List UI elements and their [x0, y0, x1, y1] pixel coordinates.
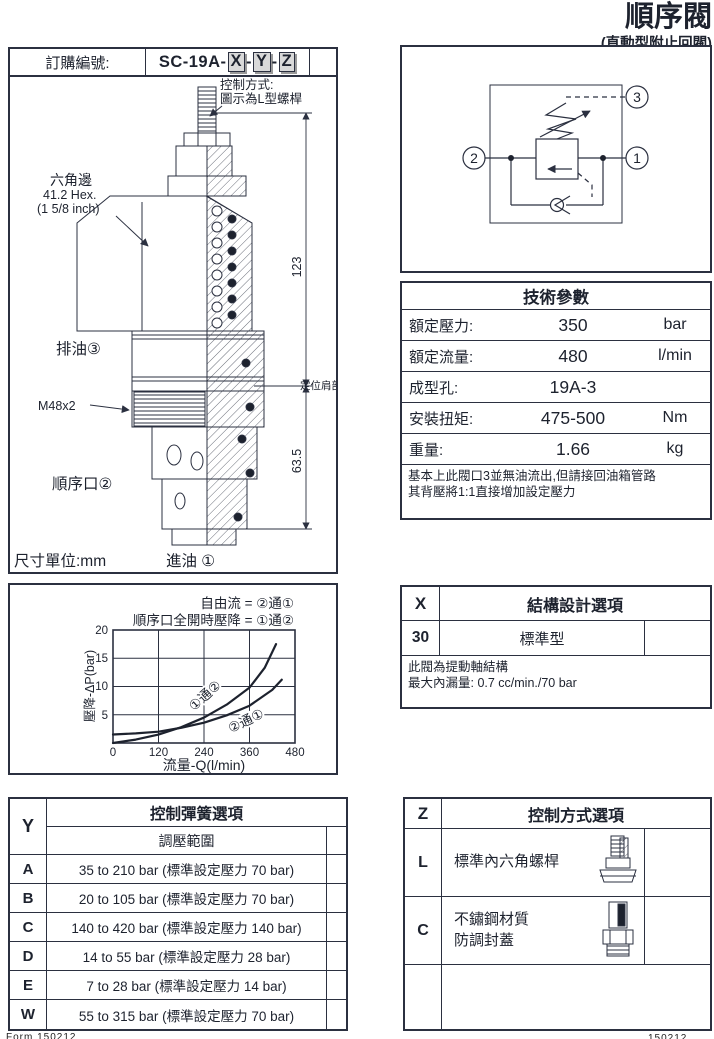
- hex-label-line2: 41.2 Hex.: [43, 188, 97, 202]
- z-empty-cell: [644, 829, 710, 896]
- thread-size-label: M48x2: [38, 399, 76, 413]
- pressure-drop-chart-panel: 自由流 = ②通① 順序口全開時壓降 = ①通② ①通② ②通① 20 15 1…: [8, 583, 338, 775]
- dim-123-label: 123: [290, 257, 304, 278]
- hex-label-line1: 六角邊: [50, 172, 92, 188]
- order-code-z-box: Z: [279, 52, 296, 71]
- tech-note-line2: 其背壓將1:1直接增加設定壓力: [408, 484, 704, 500]
- y-tick: 10: [95, 681, 108, 693]
- y-option-code: E: [10, 971, 47, 999]
- order-code-y-box: Y: [253, 52, 271, 71]
- y-tick: 15: [95, 653, 108, 665]
- unit-label: 尺寸單位:mm: [14, 552, 106, 570]
- tech-note: 基本上此閥口3並無油流出,但請接回油箱管路 其背壓將1:1直接增加設定壓力: [402, 465, 710, 504]
- y-empty-cell: [326, 913, 346, 941]
- x-option-desc: 標準型: [440, 621, 644, 655]
- y-key: Y: [10, 799, 47, 854]
- valve-cross-section-drawing: 123 63.5 定位肩部 控制方式: 圖示為L型螺桿 六角邊 41.2 Hex…: [10, 77, 336, 572]
- junction-dot-right: [600, 155, 606, 161]
- x-option-code: 30: [402, 621, 440, 655]
- dim-63-5-label: 63.5: [290, 449, 304, 473]
- tech-note-line1: 基本上此閥口3並無油流出,但請接回油箱管路: [408, 468, 704, 484]
- l-screw-drawing: [596, 834, 640, 892]
- order-code-prefix: SC-19A-: [159, 53, 227, 72]
- hydraulic-schematic: 2 1 3: [402, 47, 710, 271]
- z-empty-row: [405, 965, 710, 1029]
- tech-unit: l/min: [640, 347, 710, 365]
- tech-parameters-panel: 技術參數 額定壓力: 350 bar 額定流量: 480 l/min 成型孔: …: [400, 281, 712, 520]
- z-table-title: 控制方式選項: [442, 799, 710, 828]
- x-tick: 480: [285, 747, 304, 759]
- x-axis-label: 流量-Q(l/min): [163, 757, 245, 773]
- order-code-sep2: -: [272, 53, 278, 72]
- tech-label: 安裝扭矩:: [402, 408, 506, 429]
- port2-label: 順序口②: [52, 475, 112, 493]
- control-note-line1: 控制方式:: [220, 77, 273, 92]
- y-tick: 5: [102, 710, 108, 722]
- table-row: 額定流量: 480 l/min: [402, 341, 710, 372]
- tech-value: 350: [506, 315, 640, 336]
- table-row: 安裝扭矩: 475-500 Nm: [402, 403, 710, 434]
- y-empty-cell: [326, 971, 346, 999]
- order-code-x-box: X: [228, 52, 246, 71]
- footer-doc-code-left: Form 150212: [6, 1032, 76, 1039]
- tech-label: 成型孔:: [402, 377, 506, 398]
- table-row: B 20 to 105 bar (標準設定壓力 70 bar): [10, 884, 346, 913]
- table-row: C 不鏽鋼材質 防調封蓋: [405, 897, 710, 965]
- table-row: L 標準內六角螺桿: [405, 829, 710, 897]
- junction-dot-left: [508, 155, 514, 161]
- x-tick: 0: [110, 747, 116, 759]
- x-option-empty-cell: [644, 621, 710, 655]
- order-code: SC-19A-X-Y-Z: [146, 49, 310, 75]
- chart-title-line2: 順序口全開時壓降 = ①通②: [133, 609, 294, 629]
- z-option-code: L: [405, 829, 442, 896]
- tech-label: 額定壓力:: [402, 315, 506, 336]
- order-code-sep1: -: [246, 53, 252, 72]
- x-key: X: [402, 587, 440, 620]
- z-options-panel: Z 控制方式選項 L 標準內六角螺桿 C: [403, 797, 712, 1031]
- hex-label-line3: (1 5/8 inch): [37, 202, 100, 216]
- y-option-code: W: [10, 1000, 47, 1029]
- drawing-panel: 訂購編號: SC-19A-X-Y-Z: [8, 47, 338, 574]
- x-note: 此閥為提動軸結構 最大內漏量: 0.7 cc/min./70 bar: [402, 656, 710, 695]
- y-option-code: B: [10, 884, 47, 912]
- tech-value: 19A-3: [506, 377, 640, 398]
- tech-value: 1.66: [506, 439, 640, 460]
- table-row: 成型孔: 19A-3: [402, 372, 710, 403]
- tech-table-title: 技術參數: [402, 283, 710, 310]
- table-row: C 140 to 420 bar (標準設定壓力 140 bar): [10, 913, 346, 942]
- table-row: A 35 to 210 bar (標準設定壓力 70 bar): [10, 855, 346, 884]
- y-table-subtitle: 調壓範圍: [47, 827, 326, 854]
- x-options-panel: X 結構設計選項 30 標準型 此閥為提動軸結構 最大內漏量: 0.7 cc/m…: [400, 585, 712, 709]
- datasheet-page: 順序閥 (直動型附止回閥) 訂購編號: SC-19A-X-Y-Z: [0, 0, 714, 1039]
- y-empty-cell: [326, 1000, 346, 1029]
- tech-label: 額定流量:: [402, 346, 506, 367]
- port1-label: 進油 ①: [166, 552, 215, 570]
- z-key: Z: [405, 799, 442, 828]
- tech-label: 重量:: [402, 439, 506, 460]
- y-option-desc: 14 to 55 bar (標準設定壓力 28 bar): [47, 942, 326, 970]
- y-axis-label: 壓降-ΔP(bar): [83, 650, 97, 722]
- curve-label-2-to-1: ②通①: [226, 706, 266, 736]
- control-note-line2: 圖示為L型螺桿: [220, 91, 302, 106]
- table-row: D 14 to 55 bar (標準設定壓力 28 bar): [10, 942, 346, 971]
- schematic-panel: 2 1 3: [400, 45, 712, 273]
- curve-1-to-2: [113, 644, 276, 743]
- c-cap-drawing: [596, 900, 640, 962]
- table-row: 30 標準型: [402, 621, 710, 656]
- table-row: 額定壓力: 350 bar: [402, 310, 710, 341]
- x-note-line1: 此閥為提動軸結構: [408, 659, 704, 675]
- table-row: 重量: 1.66 kg: [402, 434, 710, 465]
- tech-unit: bar: [640, 316, 710, 334]
- x-table-title: 結構設計選項: [440, 587, 710, 620]
- order-code-row: 訂購編號: SC-19A-X-Y-Z: [10, 49, 336, 77]
- port3-label: 排油③: [56, 340, 101, 358]
- y-option-code: C: [10, 913, 47, 941]
- shoulder-label: 定位肩部: [300, 379, 336, 392]
- schematic-port1-label: 1: [633, 150, 641, 166]
- page-title: 順序閥: [601, 2, 712, 32]
- tech-value: 475-500: [506, 408, 640, 429]
- y-option-code: D: [10, 942, 47, 970]
- y-table-title: 控制彈簧選項: [47, 799, 346, 827]
- z-empty-cell: [644, 897, 710, 964]
- z-option-code: C: [405, 897, 442, 964]
- y-tick: 20: [95, 625, 108, 637]
- tech-value: 480: [506, 346, 640, 367]
- y-empty-cell: [326, 855, 346, 883]
- y-option-desc: 35 to 210 bar (標準設定壓力 70 bar): [47, 855, 326, 883]
- schematic-port2-label: 2: [470, 150, 478, 166]
- table-row: E 7 to 28 bar (標準設定壓力 14 bar): [10, 971, 346, 1000]
- y-option-desc: 20 to 105 bar (標準設定壓力 70 bar): [47, 884, 326, 912]
- y-option-code: A: [10, 855, 47, 883]
- order-empty-cell: [310, 49, 336, 75]
- footer-doc-code-right: 150212: [648, 1033, 687, 1039]
- y-empty-cell: [326, 884, 346, 912]
- table-row: W 55 to 315 bar (標準設定壓力 70 bar): [10, 1000, 346, 1029]
- y-option-desc: 7 to 28 bar (標準設定壓力 14 bar): [47, 971, 326, 999]
- y-empty-cell: [326, 827, 346, 854]
- schematic-port3-label: 3: [633, 89, 641, 105]
- y-empty-cell: [326, 942, 346, 970]
- y-option-desc: 55 to 315 bar (標準設定壓力 70 bar): [47, 1000, 326, 1029]
- y-options-panel: Y 控制彈簧選項 調壓範圍 A 35 to 210 bar (標準設定壓力 70…: [8, 797, 348, 1031]
- y-option-desc: 140 to 420 bar (標準設定壓力 140 bar): [47, 913, 326, 941]
- order-label: 訂購編號:: [10, 49, 146, 75]
- x-note-line2: 最大內漏量: 0.7 cc/min./70 bar: [408, 675, 704, 691]
- tech-unit: kg: [640, 440, 710, 458]
- tech-unit: Nm: [640, 409, 710, 427]
